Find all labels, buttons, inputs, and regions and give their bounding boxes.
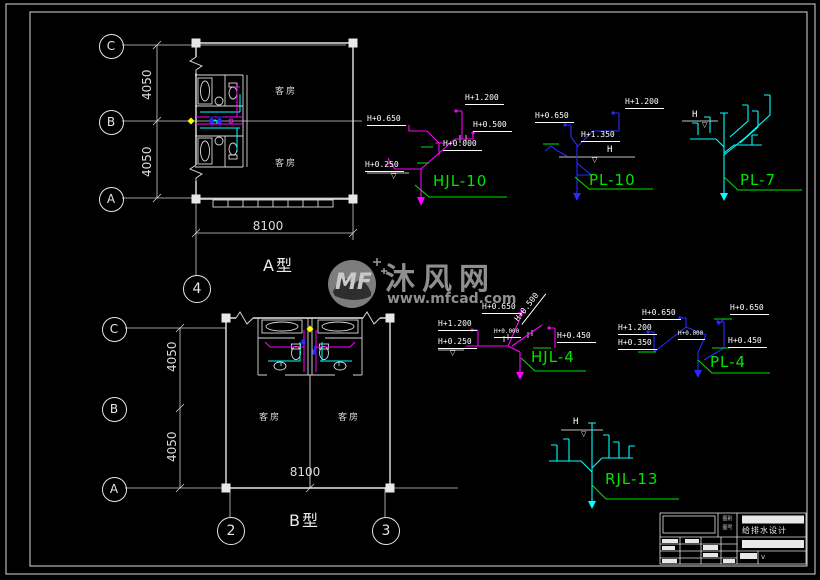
riser-name-pl4: PL-4 bbox=[710, 353, 746, 371]
plan-b-pipes-hot bbox=[265, 330, 355, 372]
riser-name-hjl10: HJL-10 bbox=[433, 172, 487, 190]
elevation-label: H+1.200 bbox=[438, 320, 477, 331]
elevation-label: H+0.450 bbox=[728, 337, 767, 348]
plan-a-room-top-label: 客房 bbox=[275, 84, 297, 97]
grid-bubble-a-4: 4 bbox=[183, 275, 211, 303]
elevation-label: H+0.650 bbox=[730, 304, 769, 315]
plan-a-valve-diamond bbox=[188, 118, 195, 125]
plan-b-room-right-label: 客房 bbox=[338, 410, 360, 423]
plan-b-room-left-label: 客房 bbox=[259, 410, 281, 423]
elevation-label: H+0.000 bbox=[443, 140, 482, 151]
level-h-label: H bbox=[607, 145, 612, 155]
elevation-label: H+0.500 bbox=[473, 121, 512, 132]
plan-b-title: B型 bbox=[289, 507, 320, 531]
elevation-label: H+0.350 bbox=[618, 339, 657, 350]
elevation-label: H+1.200 bbox=[465, 94, 504, 105]
plan-a-pipes-waste bbox=[209, 117, 223, 127]
elevation-label: H+0.250 bbox=[365, 161, 404, 172]
plan-b-bathroom bbox=[258, 318, 362, 488]
elevation-label: H+1.200 bbox=[625, 98, 664, 109]
cad-sheet: C B A 4 4050 4050 8100 客房 客房 A型 C B A 2 … bbox=[0, 0, 820, 580]
riser-name-rjl13: RJL-13 bbox=[605, 470, 658, 488]
grid-bubble-a-b: B bbox=[99, 110, 124, 135]
elevation-label: H+1.350 bbox=[581, 131, 620, 142]
elevation-label: H+0.650 bbox=[642, 309, 681, 320]
level-triangle-icon: ▽ bbox=[581, 431, 586, 438]
plan-b-pipes-cold bbox=[268, 342, 352, 366]
level-triangle-icon: ▽ bbox=[391, 173, 396, 180]
riser-hjl4: H+0.650 H+0.500 H+1.200 H+0.250 H+0.450 … bbox=[438, 300, 593, 405]
grid-bubble-a-c: C bbox=[99, 34, 124, 59]
plan-a-dim-h: 8100 bbox=[248, 219, 288, 233]
plan-a-room-bottom-label: 客房 bbox=[275, 156, 297, 169]
level-h-label: H bbox=[692, 110, 697, 120]
titleblock-col-label-1: 图别 bbox=[719, 517, 736, 522]
level-triangle-icon: ▽ bbox=[450, 350, 455, 357]
plan-a-dim-v1: 4050 bbox=[140, 70, 154, 100]
plan-a-dim-v2: 4050 bbox=[140, 147, 154, 177]
riser-hjl10: H+0.650 H+1.200 H+0.500 H+0.000 H+0.250 … bbox=[365, 85, 520, 215]
titleblock-col-label-2: 图号 bbox=[719, 526, 736, 531]
watermark-logo-text: MF bbox=[335, 270, 372, 295]
grid-bubble-b-2: 2 bbox=[217, 517, 245, 545]
plan-b-dim-v1: 4050 bbox=[165, 342, 179, 372]
riser-pl10: H+0.650 H+1.200 H+1.350 H ▽ PL-10 bbox=[535, 85, 685, 215]
elevation-label: H+0.650 bbox=[367, 115, 406, 126]
plan-a-grid bbox=[122, 41, 362, 275]
grid-bubble-b-a: A bbox=[102, 477, 127, 502]
riser-name-pl7: PL-7 bbox=[740, 171, 776, 189]
titleblock: 图别 图号 给排水设计 v bbox=[660, 513, 806, 564]
riser-name-hjl4: HJL-4 bbox=[531, 348, 575, 366]
riser-name-pl10: PL-10 bbox=[589, 171, 636, 189]
level-triangle-icon: ▽ bbox=[702, 122, 707, 129]
titleblock-project-name: 给排水设计 bbox=[742, 525, 787, 536]
elevation-label: H+1.200 bbox=[618, 324, 657, 335]
grid-bubble-b-3: 3 bbox=[372, 517, 400, 545]
watermark: MF 沐风网 www.mfcad.com bbox=[325, 252, 525, 314]
elevation-label: H+0.250 bbox=[438, 338, 477, 349]
elevation-label: H+0.000 bbox=[678, 331, 705, 340]
plan-b-dim-h: 8100 bbox=[285, 465, 325, 479]
watermark-url: www.mfcad.com bbox=[387, 291, 517, 307]
elevation-label: H+0.650 bbox=[535, 112, 574, 123]
plan-b-dim-v2: 4050 bbox=[165, 432, 179, 462]
level-h-label: H bbox=[573, 417, 578, 427]
riser-rjl13: H ▽ RJL-13 bbox=[545, 415, 695, 520]
titleblock-mark: v bbox=[761, 553, 765, 561]
level-triangle-icon: ▽ bbox=[592, 157, 597, 164]
elevation-label: H+0.000 bbox=[494, 329, 521, 338]
plan-a-title: A型 bbox=[263, 252, 294, 276]
grid-bubble-b-b: B bbox=[102, 397, 127, 422]
grid-bubble-a-a: A bbox=[99, 187, 124, 212]
plan-a-bathroom bbox=[195, 75, 333, 207]
riser-pl7: H ▽ PL-7 bbox=[682, 85, 812, 215]
grid-bubble-b-c: C bbox=[102, 317, 127, 342]
elevation-label: H+0.450 bbox=[557, 332, 596, 343]
riser-pl4: H+0.650 H+0.650 H+1.200 H+0.350 H+0.450 … bbox=[618, 300, 783, 405]
